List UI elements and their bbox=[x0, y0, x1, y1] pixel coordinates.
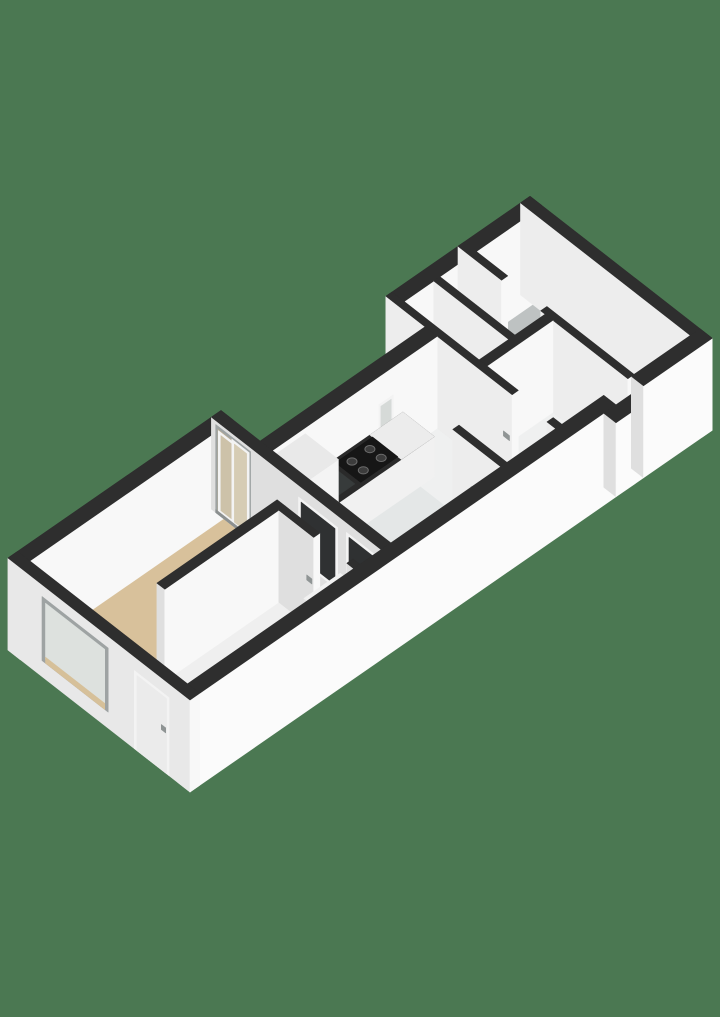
burner bbox=[376, 454, 386, 461]
floor-plan-canvas bbox=[0, 0, 720, 1017]
floor-plan-3d bbox=[0, 0, 720, 1017]
burner bbox=[365, 446, 375, 453]
sliding-door-panel2-glass bbox=[234, 444, 246, 531]
burner bbox=[358, 467, 368, 474]
burner bbox=[347, 458, 357, 465]
